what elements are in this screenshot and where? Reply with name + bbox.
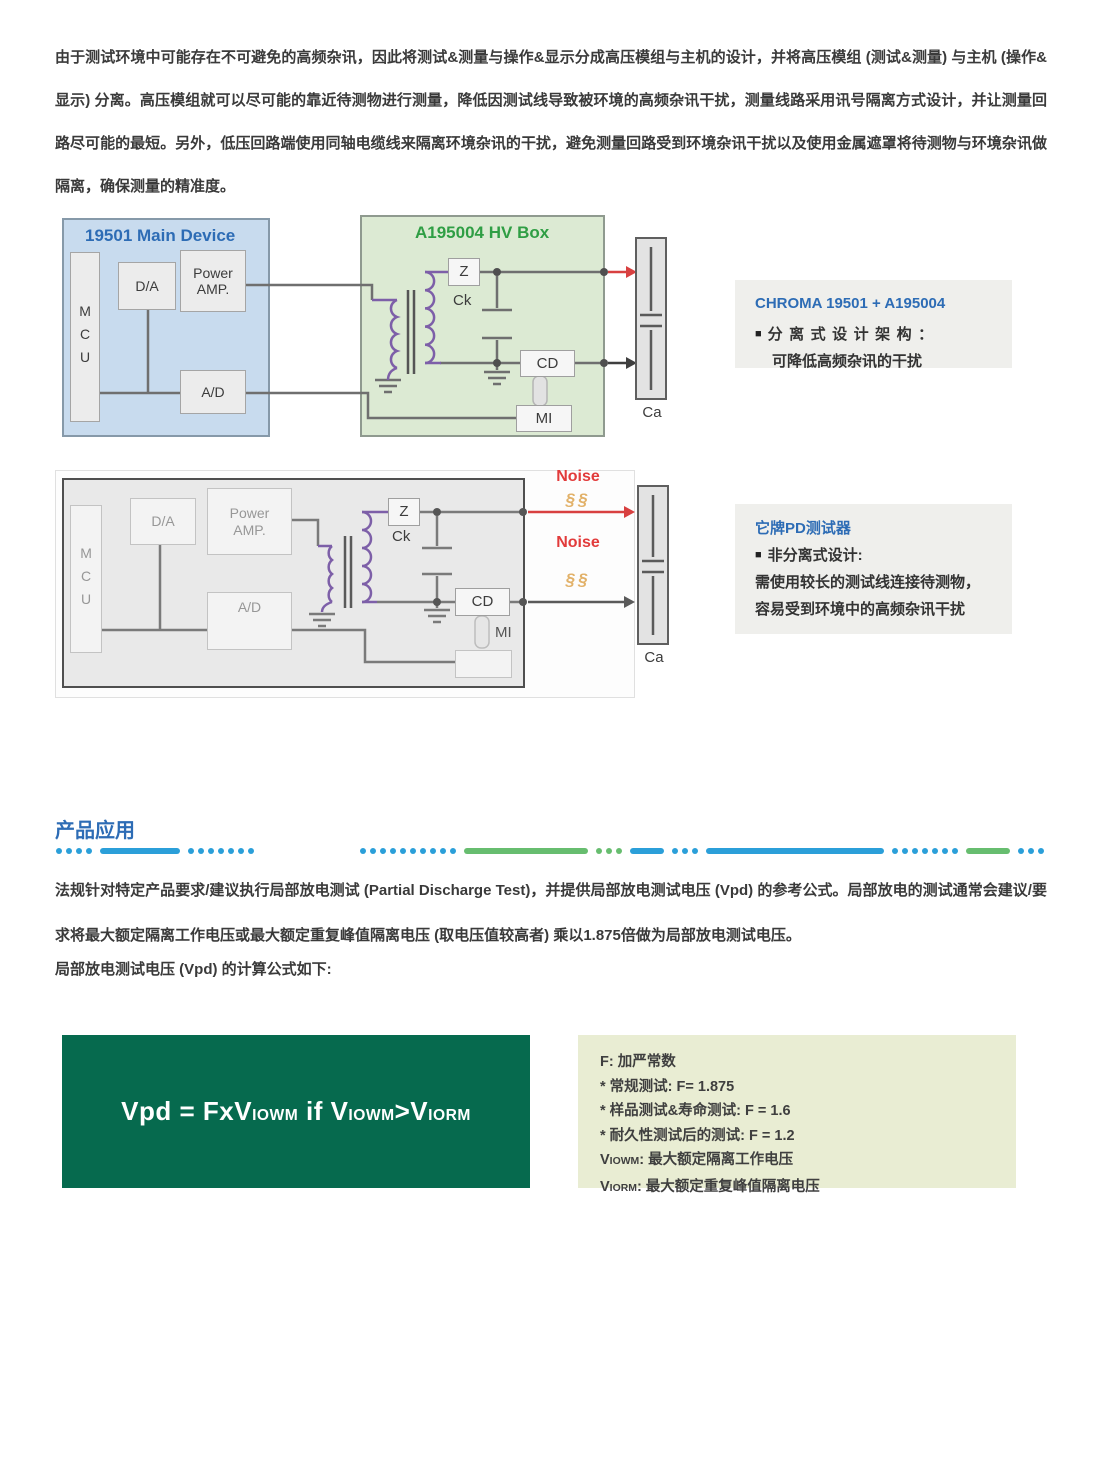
intro-paragraph: 由于测试环境中可能存在不可避免的高频杂讯，因此将测试&测量与操作&显示分成高压模… <box>55 36 1047 208</box>
ca-label: Ca <box>637 404 667 421</box>
z-block: Z <box>448 258 480 286</box>
diagram-separated-architecture: 19501 Main Device A195004 HV Box <box>55 212 715 452</box>
cd-block: CD <box>520 350 575 377</box>
hv-box-title: A195004 HV Box <box>415 223 549 243</box>
note-other-brand-line3: 容易受到环境中的高频杂讯干扰 <box>755 596 992 623</box>
mcu-label: MCU <box>78 545 94 614</box>
bullet-square-icon: ■ <box>755 321 762 348</box>
output-arrow-low <box>608 357 637 369</box>
cd-block: CD <box>455 588 510 616</box>
note-other-brand-title: 它牌PD测试器 <box>755 517 992 538</box>
legend-line: VIOWM: 最大额定隔离工作电压 <box>600 1148 994 1175</box>
section-title: 产品应用 <box>55 814 135 843</box>
mi-block <box>455 650 512 678</box>
noise-label-low: Noise <box>543 534 613 552</box>
ca-capacitor-symbol <box>639 487 667 643</box>
ca-label: Ca <box>639 649 669 666</box>
ca-capacitor-symbol <box>637 239 665 398</box>
note-chroma-title: CHROMA 19501 + A195004 <box>755 295 992 312</box>
diagram-other-brand: MCU D/A Power AMP. A/D Z Ck CD MI Noise … <box>55 468 715 708</box>
formula-intro-line: 局部放电测试电压 (Vpd) 的计算公式如下: <box>55 948 1047 991</box>
mcu-block: MCU <box>70 505 102 653</box>
ca-capacitor <box>637 485 669 645</box>
mcu-block: MCU <box>70 252 100 422</box>
section-divider <box>55 846 1045 856</box>
note-chroma-line1: 分离式设计架构： <box>768 321 940 348</box>
noise-squiggle-low-icon: §§ <box>543 570 613 590</box>
ad-block: A/D <box>207 592 292 650</box>
hv-box <box>360 215 605 437</box>
bullet-square-icon: ■ <box>755 542 762 569</box>
ck-label: Ck <box>392 528 410 545</box>
power-amp-block: Power AMP. <box>180 250 246 312</box>
da-block: D/A <box>118 262 176 310</box>
note-other-brand-line2: 需使用较长的测试线连接待测物， <box>755 569 992 596</box>
note-chroma: CHROMA 19501 + A195004 ■ 分离式设计架构： 可降低高频杂… <box>735 280 1012 368</box>
output-arrow-high <box>608 266 637 278</box>
ck-label: Ck <box>453 292 471 309</box>
main-device-title: 19501 Main Device <box>85 226 235 246</box>
vpd-formula: Vpd = FxVIOWM if VIOWM>VIORM <box>121 1096 471 1127</box>
da-block: D/A <box>130 498 196 545</box>
mcu-label: MCU <box>77 303 93 372</box>
ca-capacitor <box>635 237 667 400</box>
mi-label: MI <box>495 624 512 641</box>
vpd-formula-box: Vpd = FxVIOWM if VIOWM>VIORM <box>62 1035 530 1188</box>
note-chroma-line2: 可降低高频杂讯的干扰 <box>755 348 992 375</box>
noise-squiggle-high-icon: §§ <box>543 490 613 510</box>
ad-block: A/D <box>180 370 246 414</box>
legend-line: * 样品测试&寿命测试: F = 1.6 <box>600 1099 994 1124</box>
noise-label-high: Noise <box>543 468 613 486</box>
note-other-brand: 它牌PD测试器 ■ 非分离式设计: 需使用较长的测试线连接待测物， 容易受到环境… <box>735 504 1012 634</box>
power-amp-block: Power AMP. <box>207 488 292 555</box>
document-page: 由于测试环境中可能存在不可避免的高频杂讯，因此将测试&测量与操作&显示分成高压模… <box>0 0 1102 1470</box>
legend-line: F: 加严常数 <box>600 1050 994 1075</box>
legend-line: * 耐久性测试后的测试: F = 1.2 <box>600 1124 994 1149</box>
application-paragraph: 法规针对特定产品要求/建议执行局部放电测试 (Partial Discharge… <box>55 868 1047 958</box>
mi-block: MI <box>516 405 572 432</box>
legend-line: VIORM: 最大额定重复峰值隔离电压 <box>600 1175 994 1202</box>
note-other-brand-line1: 非分离式设计: <box>768 542 863 569</box>
formula-legend-box: F: 加严常数* 常规测试: F= 1.875* 样品测试&寿命测试: F = … <box>578 1035 1016 1188</box>
z-block: Z <box>388 498 420 526</box>
legend-line: * 常规测试: F= 1.875 <box>600 1075 994 1100</box>
